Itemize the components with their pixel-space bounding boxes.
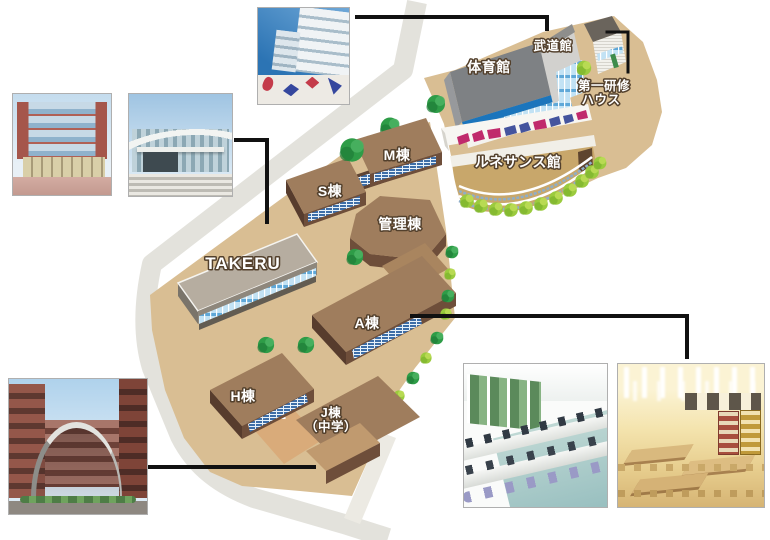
label-renaissance: ルネサンス館: [475, 154, 562, 170]
label-budokan: 武道館: [533, 38, 572, 53]
tree: [340, 138, 364, 161]
photo-curved-roof-hall: [128, 93, 233, 197]
photo-tower: [292, 7, 350, 79]
photo-bushes: [20, 496, 136, 503]
bush: [577, 61, 591, 75]
callout-line-a-building: [412, 316, 687, 357]
label-j-building-2: （中学）: [305, 419, 357, 434]
label-s-building: S棟: [318, 183, 343, 199]
photo-vending-machine: [718, 411, 739, 454]
photo-entrance: [143, 152, 178, 171]
photo-windows: [685, 393, 761, 410]
photo-windows: [467, 374, 541, 430]
label-taiikukan: 体育館: [467, 59, 511, 75]
photo-plaza: [13, 177, 111, 195]
photo-building-right: [119, 379, 147, 498]
label-m-building: M棟: [384, 147, 411, 163]
tree: [427, 95, 446, 113]
photo-steps: [129, 174, 232, 196]
photo-chairs: [618, 464, 764, 471]
photo-building: [17, 102, 107, 159]
label-takeru: TAKERU: [205, 254, 281, 273]
photo-vending-machine: [740, 410, 761, 455]
label-daiichi-kenshu-1: 第一研修: [578, 78, 630, 93]
label-kanri-building: 管理棟: [378, 216, 422, 232]
label-a-building: A棟: [354, 315, 380, 331]
photo-chairs: [618, 490, 764, 497]
label-j-building-1: J棟: [321, 405, 341, 420]
photo-cafeteria: [617, 363, 765, 508]
photo-glass-brick-building: [12, 93, 112, 196]
label-h-building: H棟: [230, 388, 256, 404]
label-daiichi-kenshu-2: ハウス: [581, 93, 620, 107]
photo-entrance: [23, 157, 105, 177]
photo-computer-lab: [463, 363, 608, 508]
campus-map-page: 体育館 武道館 第一研修 ハウス ルネサンス館 M棟 S棟 管理棟 TAKERU…: [0, 0, 770, 540]
photo-brick-arched-gate: [8, 378, 148, 515]
photo-high-rise-sports-mural: [257, 7, 350, 105]
callout-line-budokan: [357, 17, 547, 29]
